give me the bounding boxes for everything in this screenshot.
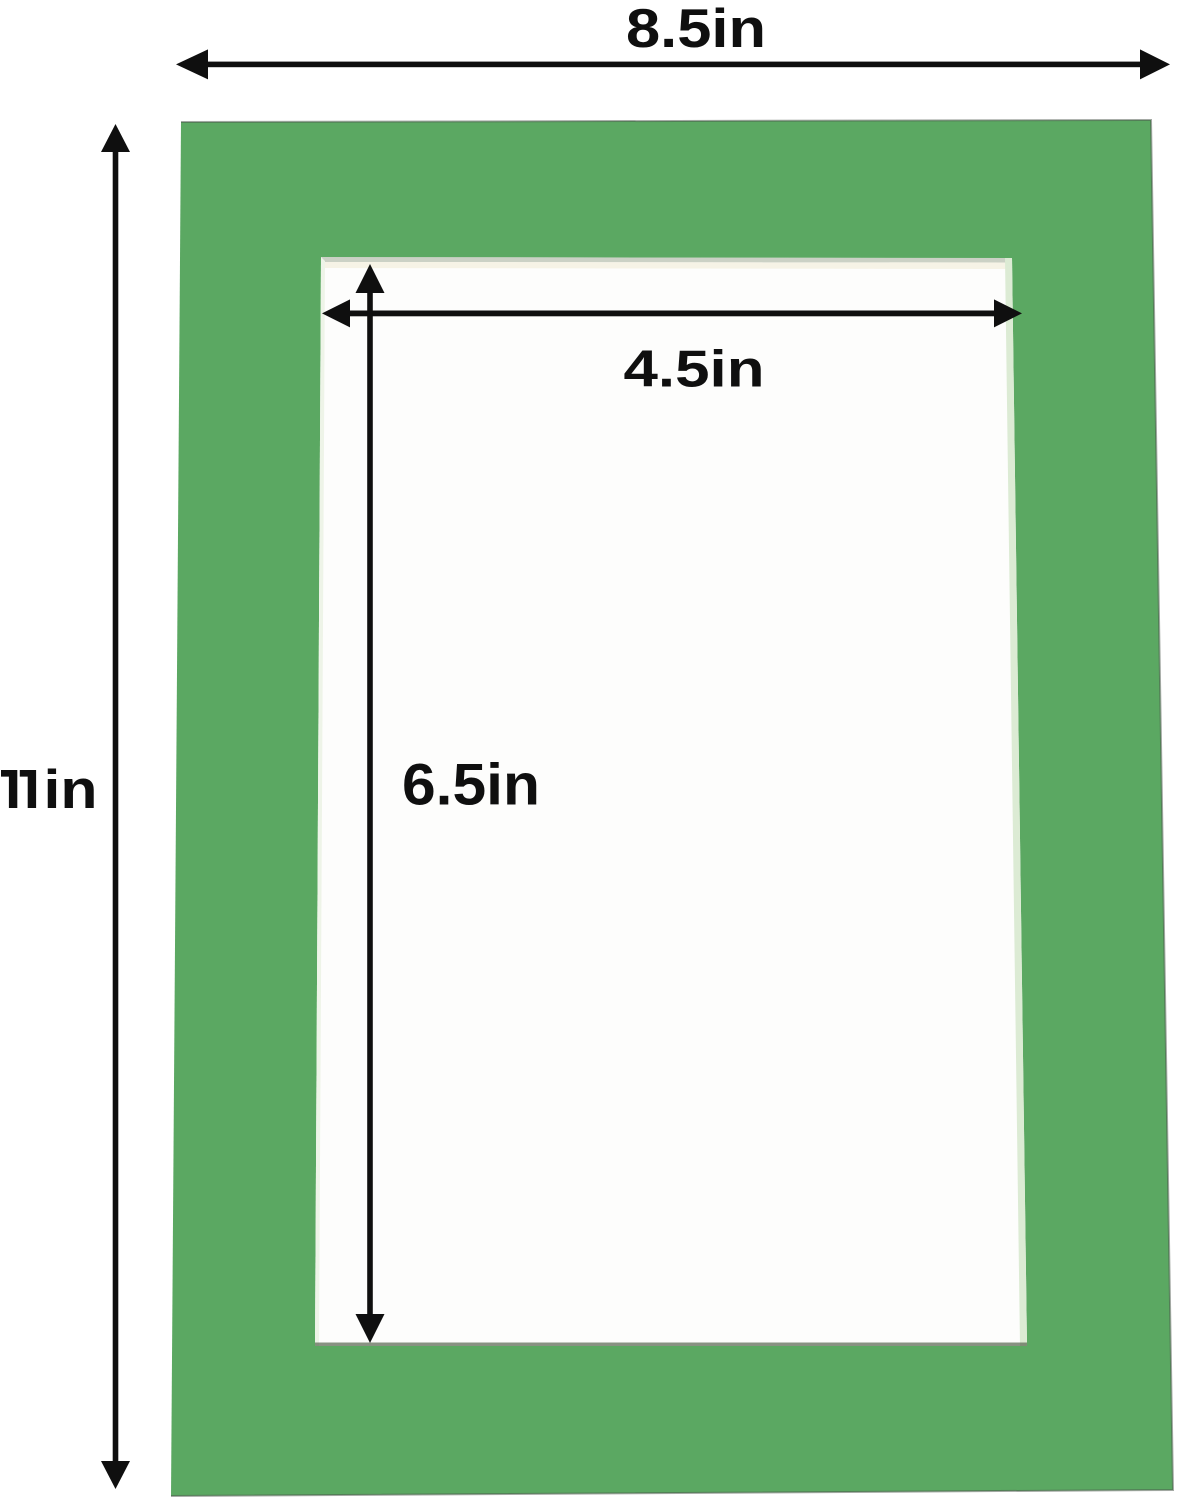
svg-text:4.5in: 4.5in — [624, 341, 765, 399]
svg-text:in: in — [44, 758, 98, 820]
svg-text:8.5in: 8.5in — [626, 0, 766, 59]
svg-text:6.5in: 6.5in — [402, 753, 540, 818]
